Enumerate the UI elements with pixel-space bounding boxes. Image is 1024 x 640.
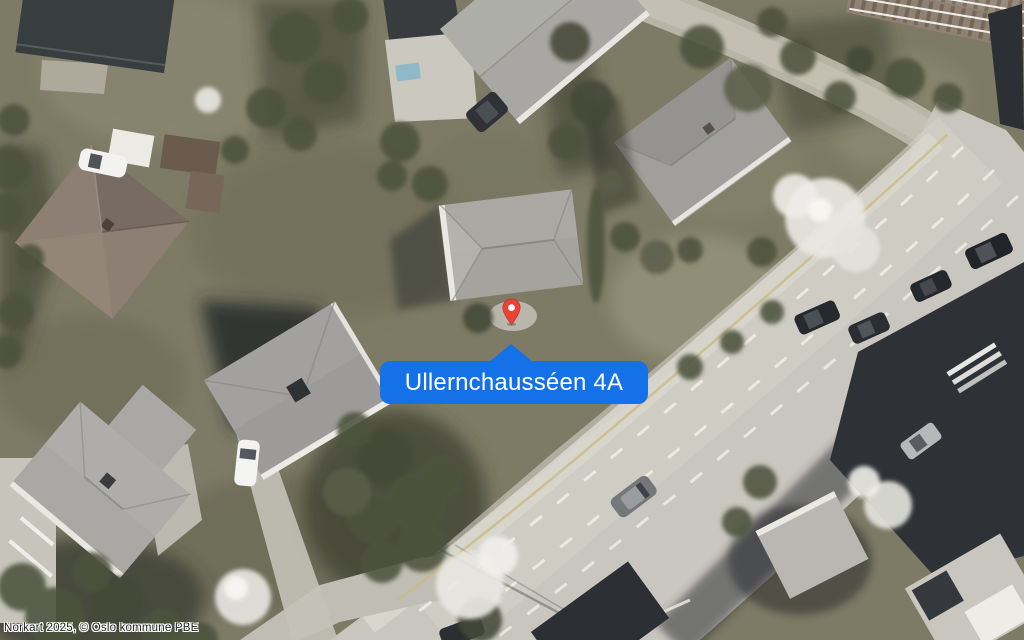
paving <box>40 60 108 94</box>
pool <box>395 62 421 81</box>
map-attribution: Norkart 2025, © Oslo kommune PBE <box>4 622 198 634</box>
address-popup[interactable]: Ullernchausséen 4A <box>380 361 648 404</box>
shed-roof <box>186 171 225 213</box>
popup-pointer <box>489 344 533 362</box>
map-viewport[interactable]: Ullernchausséen 4A Norkart 2025, © Oslo … <box>0 0 1024 640</box>
address-popup-label: Ullernchausséen 4A <box>405 369 623 397</box>
location-pin-icon[interactable] <box>502 298 521 326</box>
house-roof-marker <box>439 189 584 301</box>
